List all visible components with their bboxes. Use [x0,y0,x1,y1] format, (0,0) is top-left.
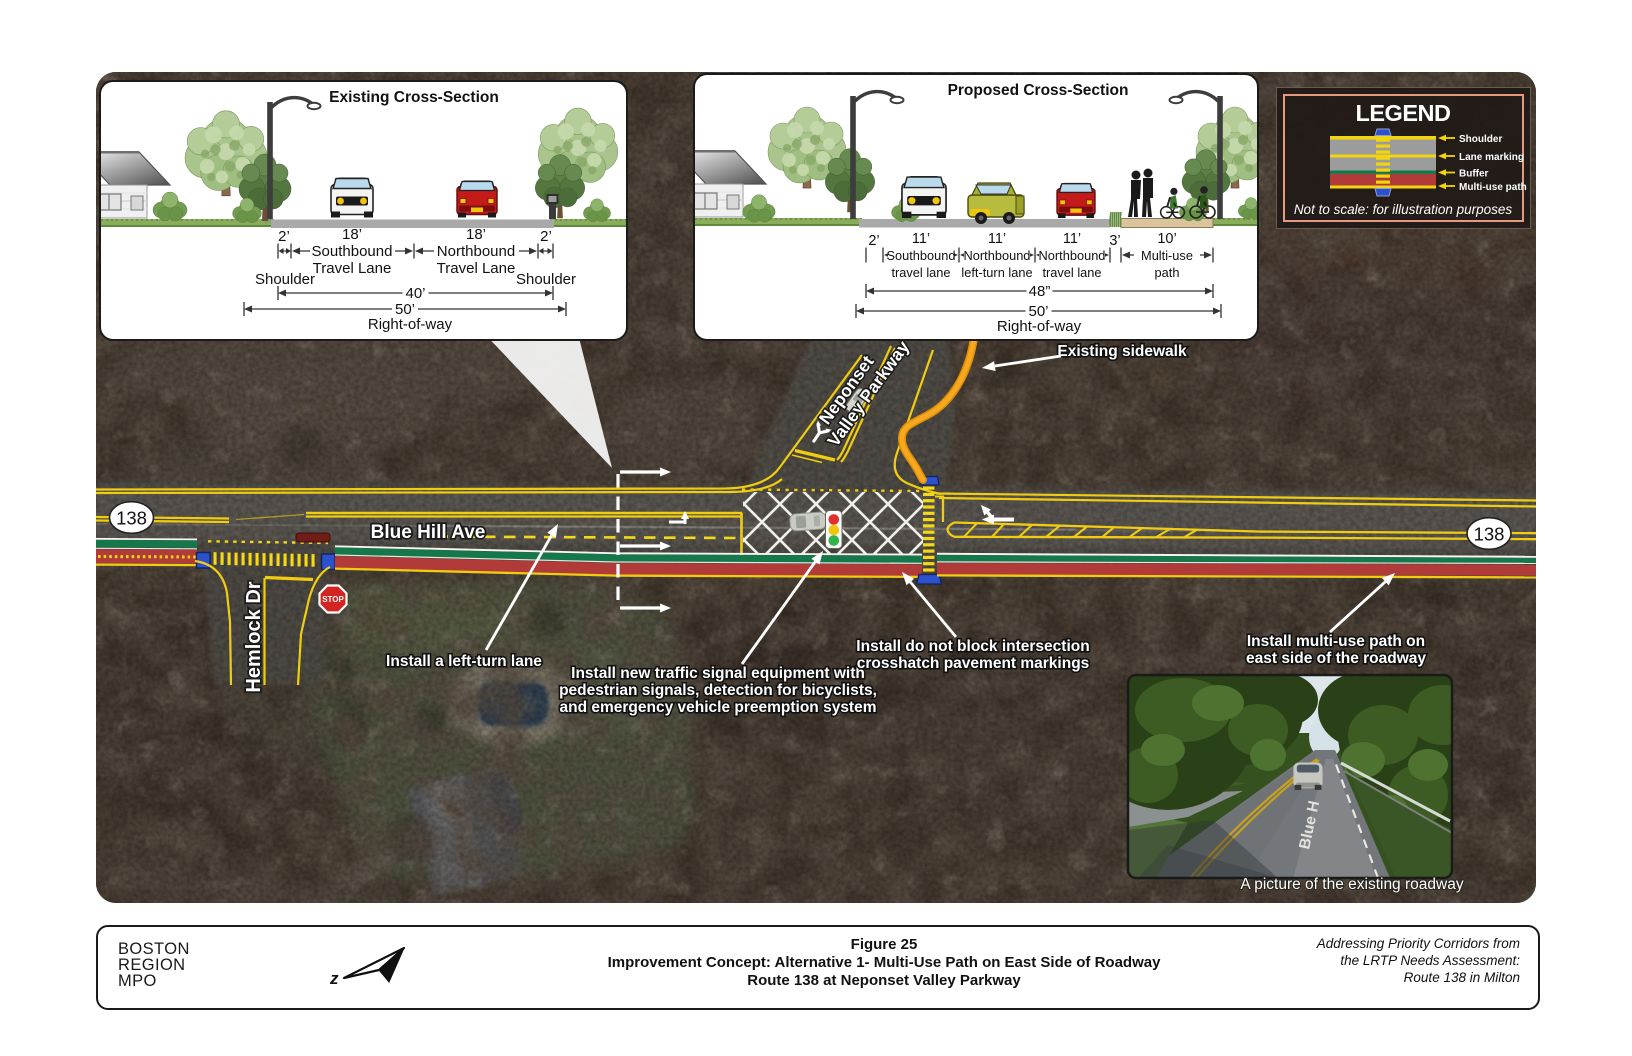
svg-text:Route 138 in Milton: Route 138 in Milton [1404,970,1520,985]
svg-text:Right-of-way: Right-of-way [368,316,453,333]
svg-text:Figure 25: Figure 25 [851,936,918,953]
svg-text:Northbound: Northbound [1039,248,1106,263]
svg-text:Proposed Cross-Section: Proposed Cross-Section [948,82,1129,99]
svg-text:Southbound: Southbound [312,243,393,260]
svg-text:Northbound: Northbound [964,248,1031,263]
svg-text:Install do not block intersect: Install do not block intersection [856,638,1089,655]
svg-text:Lane marking: Lane marking [1459,152,1524,163]
svg-text:18’: 18’ [342,226,362,243]
svg-text:Southbound: Southbound [886,248,955,263]
svg-text:11’: 11’ [1063,231,1081,247]
svg-text:Existing Cross-Section: Existing Cross-Section [329,89,499,106]
svg-text:3’: 3’ [1109,233,1120,249]
svg-text:2’: 2’ [278,228,290,245]
svg-text:travel lane: travel lane [1042,265,1101,280]
svg-text:Install new traffic signal equ: Install new traffic signal equipment wit… [571,665,865,682]
svg-text:crosshatch pavement markings: crosshatch pavement markings [857,655,1090,672]
svg-text:18’: 18’ [466,226,486,243]
svg-text:Shoulder: Shoulder [1459,134,1502,145]
svg-text:138: 138 [1474,524,1505,545]
svg-text:Right-of-way: Right-of-way [997,318,1082,335]
svg-text:the LRTP Needs Assessment:: the LRTP Needs Assessment: [1340,953,1520,968]
svg-text:path: path [1155,265,1180,280]
svg-text:MPO: MPO [118,972,157,990]
svg-text:Blue Hill Ave: Blue Hill Ave [371,522,486,543]
svg-text:east side of the roadway: east side of the roadway [1246,650,1426,667]
svg-text:Install a left-turn lane: Install a left-turn lane [386,653,542,670]
svg-text:48”: 48” [1029,283,1051,300]
svg-text:STOP: STOP [322,595,344,604]
svg-text:2’: 2’ [540,228,552,245]
svg-text:LEGEND: LEGEND [1356,100,1451,126]
svg-text:Shoulder: Shoulder [516,271,576,288]
svg-text:10’: 10’ [1157,231,1176,247]
svg-text:Multi-use: Multi-use [1141,248,1193,263]
svg-text:and emergency vehicle preempti: and emergency vehicle preemption system [559,699,876,716]
svg-text:Addressing Priority Corridors: Addressing Priority Corridors from [1316,936,1520,951]
svg-text:11’: 11’ [912,231,930,247]
svg-text:Travel Lane: Travel Lane [437,260,516,277]
svg-text:40’: 40’ [405,285,425,302]
svg-text:travel lane: travel lane [891,265,950,280]
svg-text:2’: 2’ [868,233,879,249]
svg-text:Install multi-use path on: Install multi-use path on [1247,633,1425,650]
svg-text:Buffer: Buffer [1459,169,1489,180]
svg-text:138: 138 [116,508,147,529]
svg-text:Existing sidewalk: Existing sidewalk [1057,343,1187,360]
svg-text:Hemlock Dr: Hemlock Dr [243,581,265,692]
svg-text:pedestrian signals, detection: pedestrian signals, detection for bicycl… [559,682,877,699]
svg-text:z: z [329,969,339,988]
svg-text:Travel Lane: Travel Lane [313,260,392,277]
svg-text:Improvement Concept: Alternati: Improvement Concept: Alternative 1- Mult… [608,954,1162,971]
svg-text:left-turn lane: left-turn lane [961,265,1032,280]
svg-text:Multi-use path: Multi-use path [1459,182,1527,193]
svg-text:Route 138 at Neponset Valley P: Route 138 at Neponset Valley Parkway [747,972,1021,989]
svg-text:Not to scale: for illustration: Not to scale: for illustration purposes [1294,202,1513,217]
svg-text:Northbound: Northbound [437,243,515,260]
svg-text:11’: 11’ [988,231,1006,247]
svg-text:A picture of the existing road: A picture of the existing roadway [1240,876,1463,893]
svg-text:Shoulder: Shoulder [255,271,315,288]
